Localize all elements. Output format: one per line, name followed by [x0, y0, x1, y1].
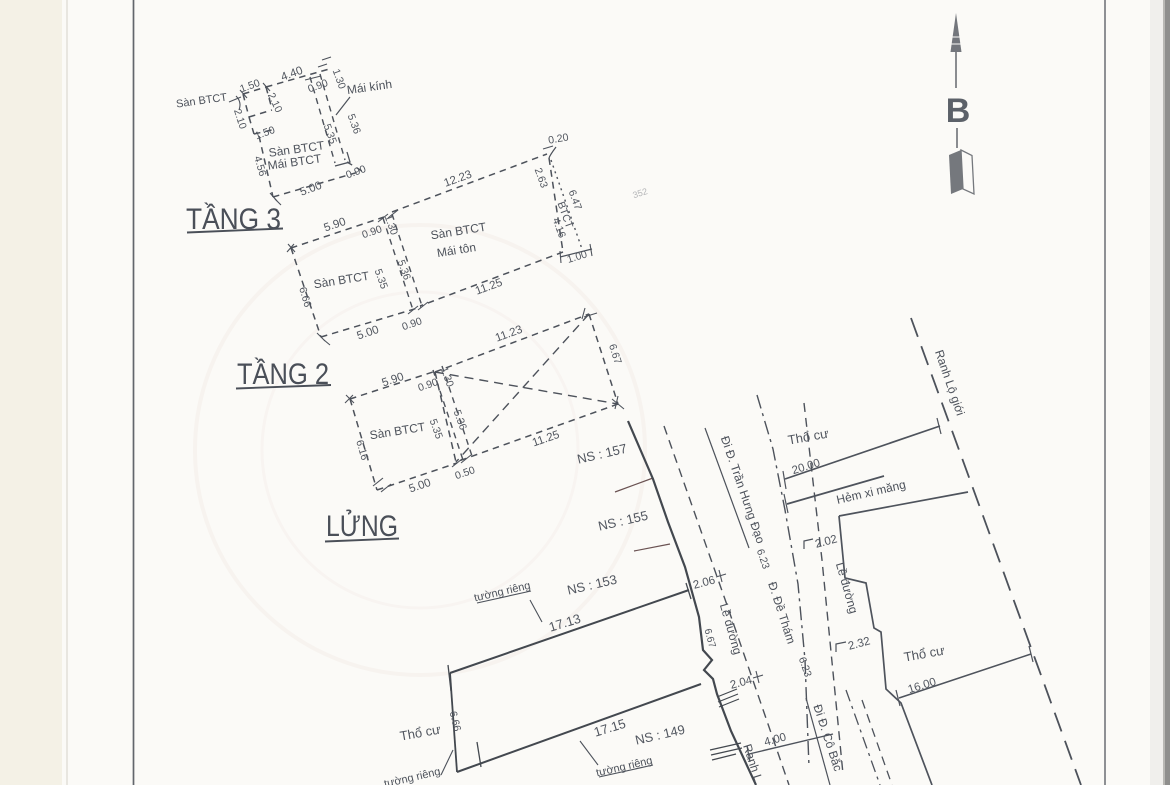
svg-text:B: B: [946, 92, 971, 130]
svg-text:LỬNG: LỬNG: [326, 509, 398, 543]
